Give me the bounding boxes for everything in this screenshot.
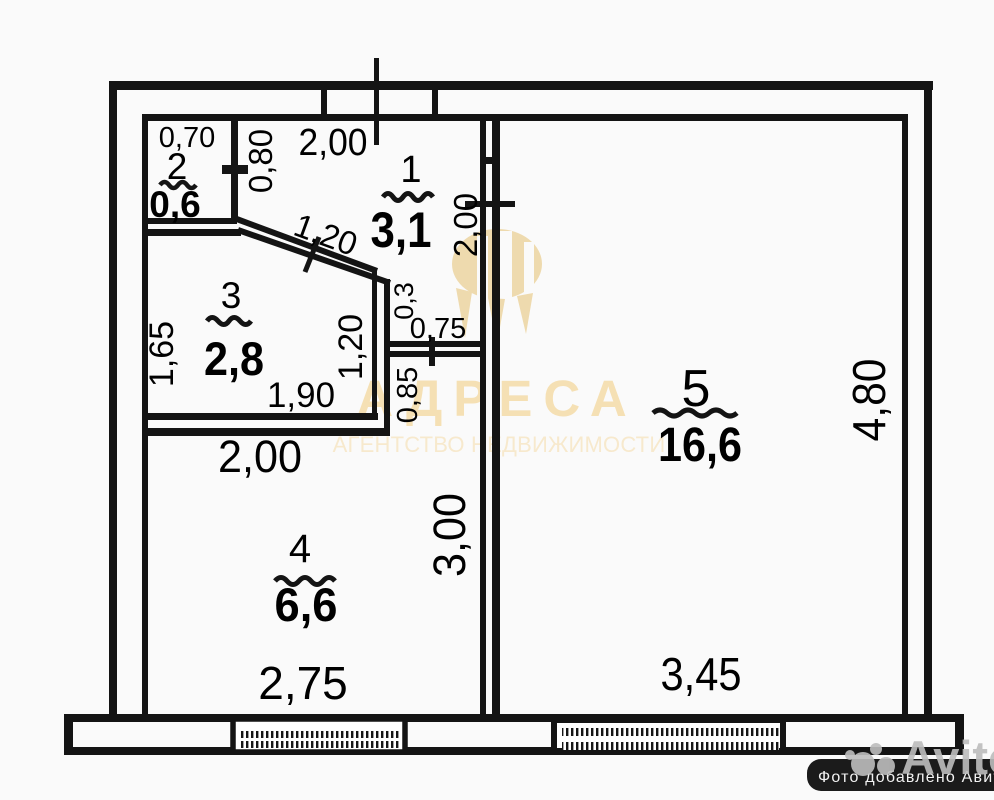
svg-text:4: 4 xyxy=(289,527,311,571)
svg-text:2,00: 2,00 xyxy=(299,122,368,164)
svg-text:1: 1 xyxy=(400,149,421,191)
svg-text:3,00: 3,00 xyxy=(424,493,475,577)
svg-text:0,80: 0,80 xyxy=(242,129,279,193)
svg-text:4,80: 4,80 xyxy=(843,359,895,442)
svg-text:Avito: Avito xyxy=(901,731,994,784)
svg-text:1,20: 1,20 xyxy=(332,314,370,380)
svg-text:1,65: 1,65 xyxy=(143,321,181,387)
svg-text:2,8: 2,8 xyxy=(204,332,264,385)
svg-text:2,00: 2,00 xyxy=(447,193,484,257)
svg-text:3,45: 3,45 xyxy=(661,648,742,700)
svg-text:1,90: 1,90 xyxy=(267,376,335,415)
svg-text:0,75: 0,75 xyxy=(410,313,466,345)
svg-text:3: 3 xyxy=(221,275,242,316)
svg-text:2,75: 2,75 xyxy=(258,657,348,709)
svg-text:0,6: 0,6 xyxy=(149,184,200,225)
svg-text:3,1: 3,1 xyxy=(371,202,432,258)
svg-text:2,00: 2,00 xyxy=(218,431,302,482)
svg-text:6,6: 6,6 xyxy=(275,578,338,631)
svg-text:16,6: 16,6 xyxy=(658,419,742,472)
svg-text:0,85: 0,85 xyxy=(392,367,424,423)
